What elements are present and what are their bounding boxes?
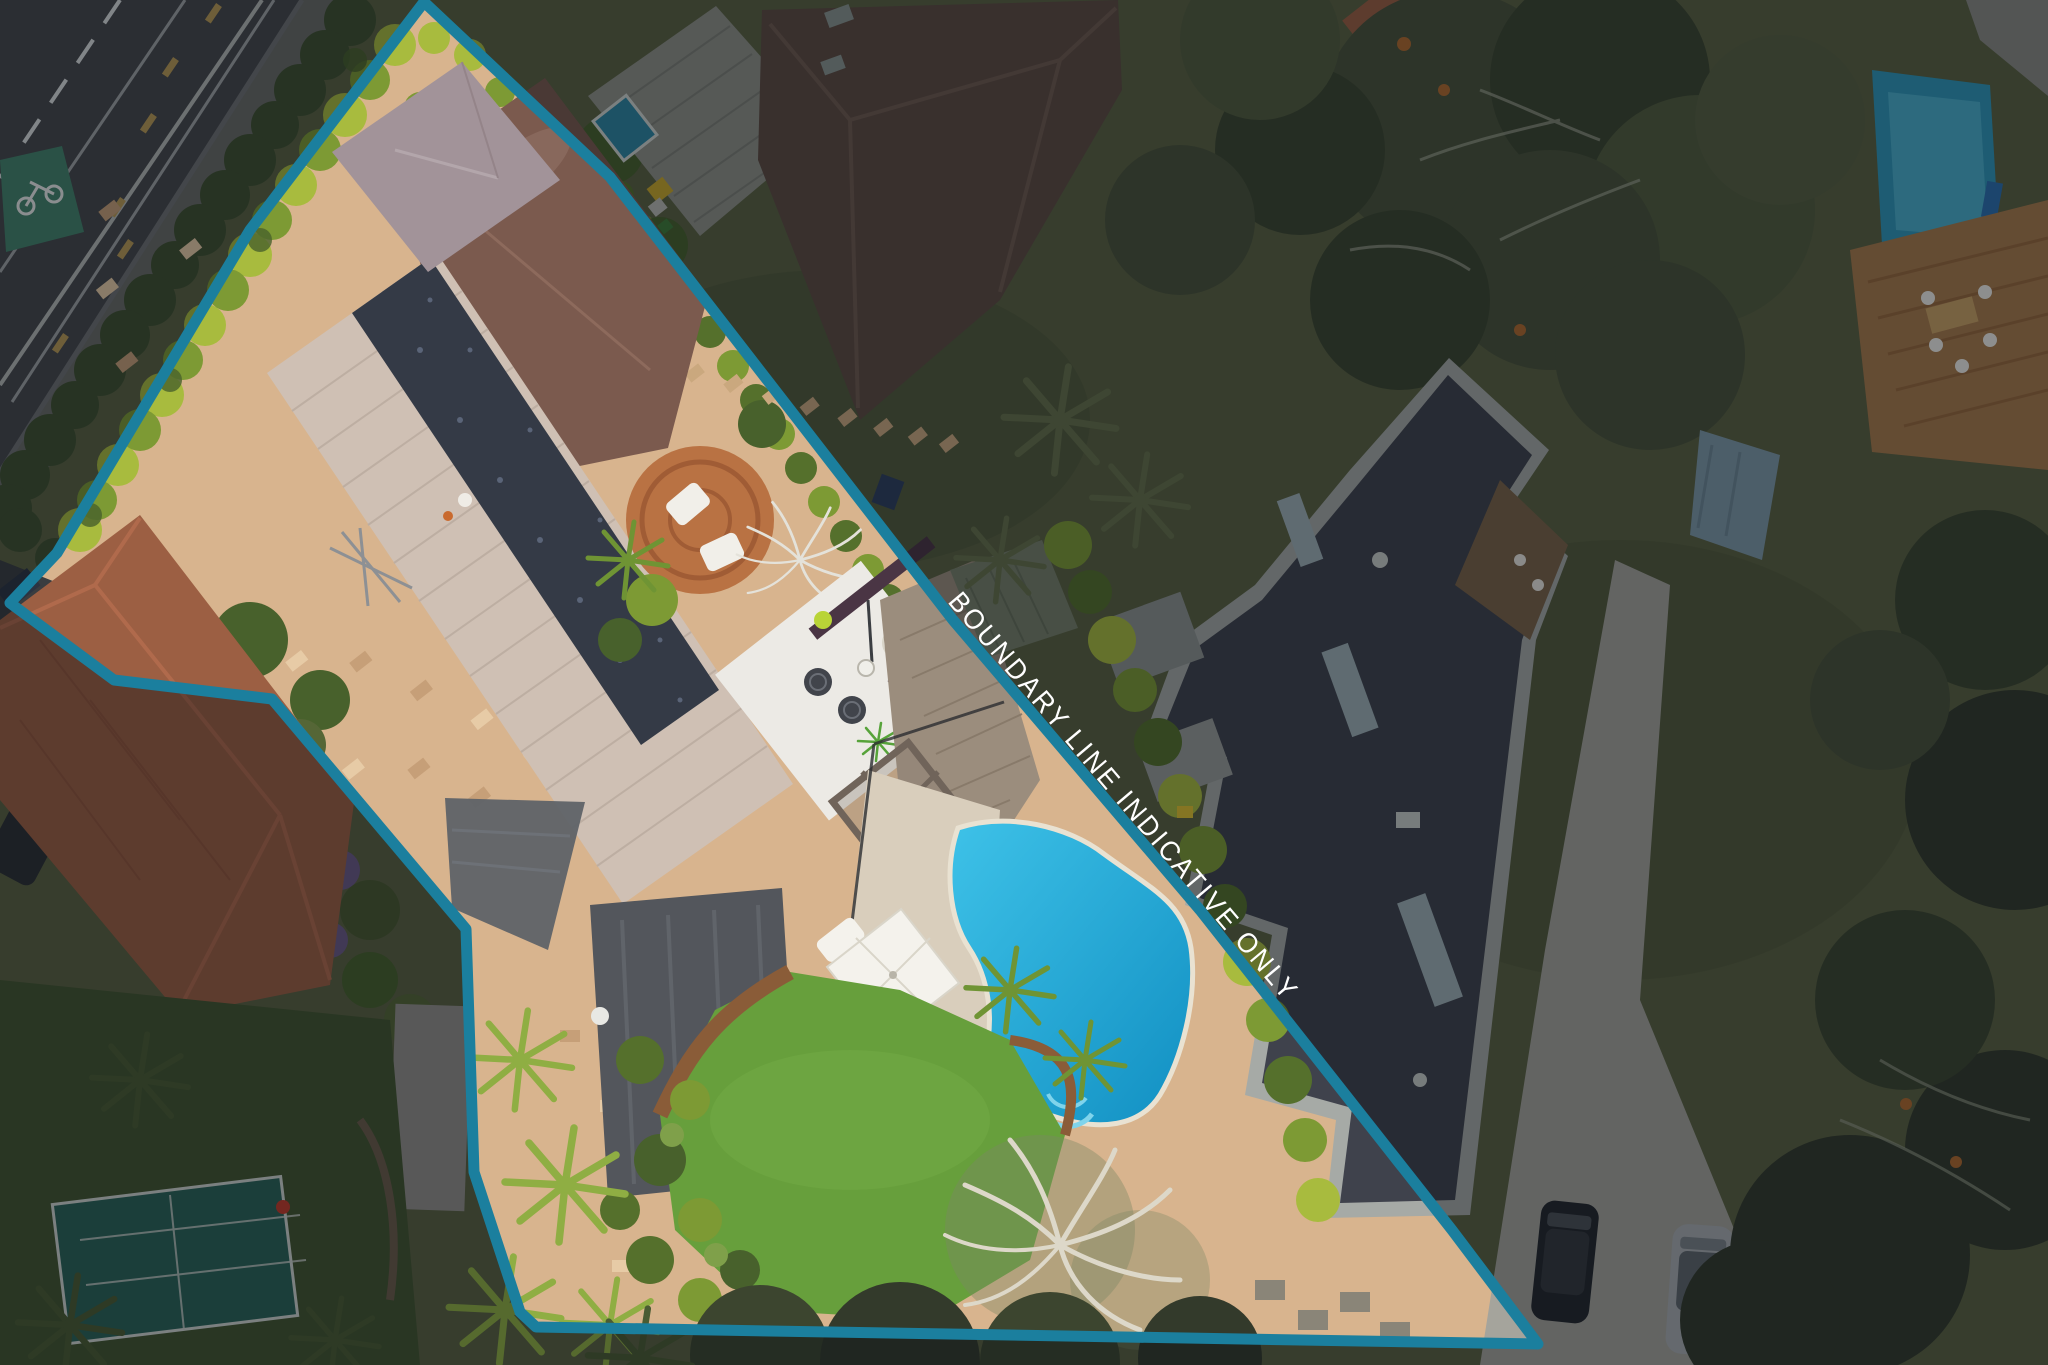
aerial-photo-svg: BOUNDARY LINE INDICATIVE ONLY: [0, 0, 2048, 1365]
aerial-photo: BOUNDARY LINE INDICATIVE ONLY: [0, 0, 2048, 1365]
roof-object: [443, 511, 453, 521]
satellite-dish-icon: [591, 1007, 609, 1025]
wicker-chair: [838, 696, 866, 724]
wicker-chair: [804, 668, 832, 696]
roof-vent: [458, 493, 472, 507]
outdoor-dish: [858, 660, 874, 676]
spiky-plant: [814, 611, 832, 629]
terracotta-patio: [626, 446, 774, 594]
